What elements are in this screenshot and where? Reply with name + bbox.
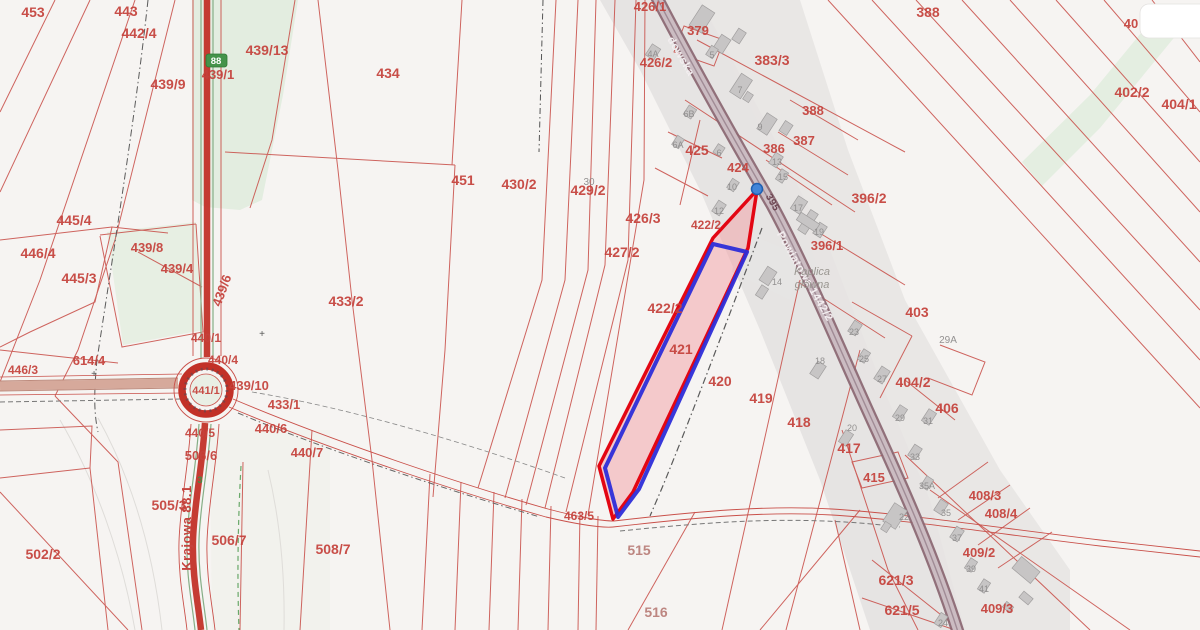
parcel-number-label: 451 (451, 172, 475, 188)
parcel-number-label: 396/1 (811, 238, 844, 253)
parcel-number-label: 463/5 (564, 509, 594, 523)
parcel-number-label: 418 (787, 414, 811, 430)
parcel-number-label: 506/7 (211, 532, 246, 548)
building-number-label: 23 (849, 327, 859, 337)
survey-cross: + (259, 329, 265, 340)
parcel-number-label: 614/4 (73, 353, 106, 368)
parcel-number-label: 506/6 (185, 448, 218, 463)
parcel-number-label: 388 (802, 103, 824, 118)
parcel-number-label: 440/4 (208, 353, 238, 367)
building-number-label: 31 (923, 416, 933, 426)
parcel-number-label: 420 (708, 373, 732, 389)
parcel-number-label: 453 (21, 4, 45, 20)
overlay-box (1140, 4, 1200, 38)
parcel-number-label: 440/5 (185, 426, 215, 440)
parcel-number-label: 396/2 (851, 190, 886, 206)
building-number-label: 29A (939, 335, 957, 346)
parcel-number-label: 439/1 (202, 67, 235, 82)
parcel-number-label: 387 (793, 133, 815, 148)
parcel-number-label: 402/2 (1114, 84, 1149, 100)
parcel-number-label: 439/4 (161, 261, 194, 276)
parcel-number-label: 422/2 (647, 300, 682, 316)
parcel-number-label: 419 (749, 390, 773, 406)
parcel-number-label: 40 (1124, 16, 1138, 31)
parcel-number-label: 440/6 (255, 421, 288, 436)
place-name-line2: główna (795, 279, 830, 291)
building-number-label: 22 (899, 512, 909, 522)
parcel-number-label: 406 (935, 400, 959, 416)
parcel-number-label: 508/7 (315, 541, 350, 557)
parcel-number-label: 408/3 (969, 488, 1002, 503)
building-number-label: 30 (583, 177, 595, 188)
parcel-number-label: 445/4 (56, 212, 91, 228)
building-number-label: 9 (757, 122, 762, 132)
bridge-marker-text: 3 (197, 475, 202, 485)
parcel-number-label: 425 (685, 142, 709, 158)
parcel-number-label: 426/3 (625, 210, 660, 226)
building-number-label: 4A (647, 49, 658, 59)
parcel-number-label: 388 (916, 4, 940, 20)
parcel-number-label: 379 (687, 23, 709, 38)
building-number-label: 12 (714, 206, 724, 216)
parcel-number-label: 439/8 (131, 240, 164, 255)
building-number-label: 35 (941, 508, 951, 518)
building-number-label: 13 (772, 157, 782, 167)
building-number-label: 24 (938, 618, 948, 628)
parcel-number-label: 446/4 (20, 245, 55, 261)
building-number-label: 37 (952, 533, 962, 543)
parcel-number-label: 404/1 (1161, 96, 1196, 112)
parcel-number-label: 621/3 (878, 572, 913, 588)
cadastral-map-canvas[interactable]: 453443442/4439/9439/1439/13434426/1426/2… (0, 0, 1200, 630)
parcel-number-label: 443 (114, 3, 138, 19)
parcel-number-label: 439/13 (246, 42, 289, 58)
parcel-number-label: 404/2 (895, 374, 930, 390)
parcel-number-label: 409/3 (981, 601, 1014, 616)
building-number-label: 25 (859, 354, 869, 364)
building-number-label: 33 (910, 452, 920, 462)
building-number-label: 17 (793, 203, 803, 213)
parcel-number-label: 408/4 (985, 506, 1018, 521)
parcel-number-label: 515 (627, 542, 651, 558)
parcel-number-label: 422/2 (691, 218, 721, 232)
building-number-label: 6A (672, 140, 683, 150)
parcel-number-label: 445/3 (61, 270, 96, 286)
field-path (229, 399, 1200, 557)
parcel-number-label: 439/10 (229, 378, 269, 393)
parcel-number-label: 415 (863, 470, 885, 485)
parcel-number-label: 442/4 (121, 25, 156, 41)
parcel-number-label: 426/1 (634, 0, 667, 14)
building-number-label: 39 (966, 564, 976, 574)
parcel-number-label: 403 (905, 304, 929, 320)
parcel-number-label: 516 (644, 604, 668, 620)
building-number-label: 7 (737, 85, 742, 95)
road-number-badge-text: 88 (211, 56, 222, 67)
parcel-number-label: 433/2 (328, 293, 363, 309)
building-number-label: 35A (919, 481, 935, 491)
parcel-number-label: 441/1 (192, 385, 220, 397)
parcel-number-label: 446/3 (8, 363, 38, 377)
parcel-number-label: 440/7 (291, 445, 324, 460)
building-number-label: 18 (815, 356, 825, 366)
building-number-label: 41 (979, 584, 989, 594)
parcel-number-label: 427/2 (604, 244, 639, 260)
place-name-line1: Kaplica (794, 266, 830, 278)
building-number-label: 20 (847, 423, 857, 433)
street-name-label: Krajowa 88.1 (179, 485, 194, 571)
parcel-number-label: 621/5 (884, 602, 919, 618)
parcel-number-label: 502/2 (25, 546, 60, 562)
selected-point-marker[interactable] (752, 184, 763, 195)
building-number-label: 29 (895, 413, 905, 423)
parcel-number-label: 424 (727, 160, 749, 175)
parcel-number-label: 421 (669, 341, 693, 357)
building-number-label: 27 (877, 374, 887, 384)
parcel-number-label: 440/1 (191, 331, 221, 345)
building-number-label: 6B (683, 109, 694, 119)
parcel-number-label: 439/9 (150, 76, 185, 92)
building-number-label: 19 (814, 227, 824, 237)
parcel-number-label: 409/2 (963, 545, 996, 560)
parcel-number-label: 430/2 (501, 176, 536, 192)
building-number-label: 14 (772, 277, 782, 287)
survey-cross: + (91, 369, 97, 380)
parcel-number-label: 383/3 (754, 52, 789, 68)
parcel-number-label: 417 (837, 440, 861, 456)
parcel-number-label: 434 (376, 65, 400, 81)
building-number-label: 6 (716, 148, 721, 158)
parcel-number-label: 386 (763, 141, 785, 156)
building-number-label: 5 (709, 50, 714, 60)
building-number-label: 10 (727, 182, 737, 192)
parcel-number-label: 433/1 (268, 397, 301, 412)
building-number-label: 15 (778, 172, 788, 182)
